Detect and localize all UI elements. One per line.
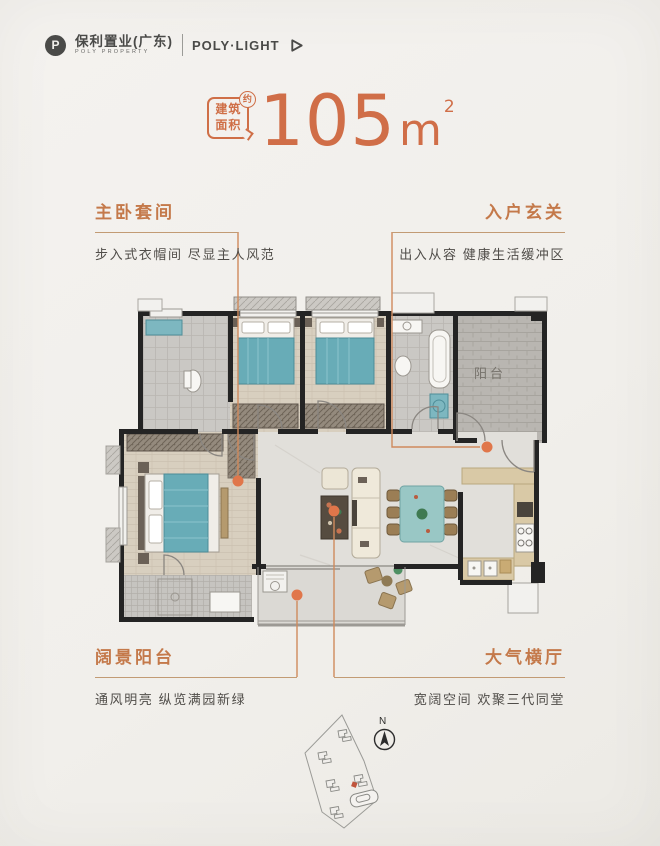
site-podium [349,789,379,808]
brand-logo: P 保利置业(广东) POLY PROPERTY POLY·LIGHT [45,34,304,56]
callout-master-suite: 主卧套间 步入式衣帽间 尽显主人风范 [95,203,275,263]
north-label: N [379,716,386,727]
service-balcony [508,583,538,613]
bathtub [429,330,450,388]
walk-in-closet [228,434,255,478]
callout-entry-foyer: 入户玄关 出入从容 健康生活缓冲区 [392,203,565,263]
callout-title: 入户玄关 [485,203,565,223]
vanity-sink [146,320,182,335]
sofa-console [352,468,380,558]
area-headline: 建筑 面积 约 105 m 2 [0,94,660,149]
wardrobe-2 [233,404,298,428]
wardrobe-3 [304,404,384,428]
area-unit: m [399,113,442,148]
callout-rule [334,677,565,678]
flyer-canvas: P 保利置业(广东) POLY PROPERTY POLY·LIGHT 建筑 面… [0,0,660,846]
callout-title: 阔景阳台 [95,648,297,668]
area-badge-line2: 面积 [215,118,241,134]
logo-divider [182,34,183,56]
dot-view-balcony [292,590,303,601]
balcony-room-label: 阳台 [474,363,506,382]
play-triangle-icon [289,38,304,53]
site-plan [305,715,395,828]
area-badge: 建筑 面积 约 [207,97,249,138]
area-superscript: 2 [444,97,455,117]
callout-desc: 出入从容 健康生活缓冲区 [399,244,565,263]
callout-grand-hall: 大气横厅 宽阔空间 欢聚三代同堂 [334,648,565,708]
callout-rule [95,677,297,678]
callout-view-balcony: 阔景阳台 通风明亮 纵览满园新绿 [95,648,297,708]
approx-circle-badge: 约 [239,91,256,108]
bed-3 [316,318,374,384]
area-number: 105 [259,94,396,149]
callout-desc: 步入式衣帽间 尽显主人风范 [95,244,275,263]
callout-rule [95,232,238,233]
badge-tail [242,128,255,141]
bed-2 [238,318,294,384]
brand-name-en: POLY PROPERTY [75,50,173,56]
dot-grand-hall [329,506,340,517]
compass-icon [375,730,395,750]
dot-master-suite [233,476,244,487]
brand-name-cn: 保利置业(广东) [75,35,173,49]
armchair [322,468,348,489]
master-bed [138,474,228,552]
callout-desc: 通风明亮 纵览满园新绿 [95,689,297,708]
callout-rule [392,232,565,233]
callout-title: 主卧套间 [95,203,275,223]
dining-set [387,486,457,542]
dot-entry-foyer [482,442,493,453]
toilet-2 [395,356,411,376]
product-name: POLY·LIGHT [192,38,280,53]
callout-desc: 宽阔空间 欢聚三代同堂 [414,689,565,708]
master-wardrobe [127,434,223,451]
area-badge-line1: 建筑 [215,102,241,118]
poly-circle-icon: P [45,35,66,56]
callout-title: 大气横厅 [485,648,565,668]
